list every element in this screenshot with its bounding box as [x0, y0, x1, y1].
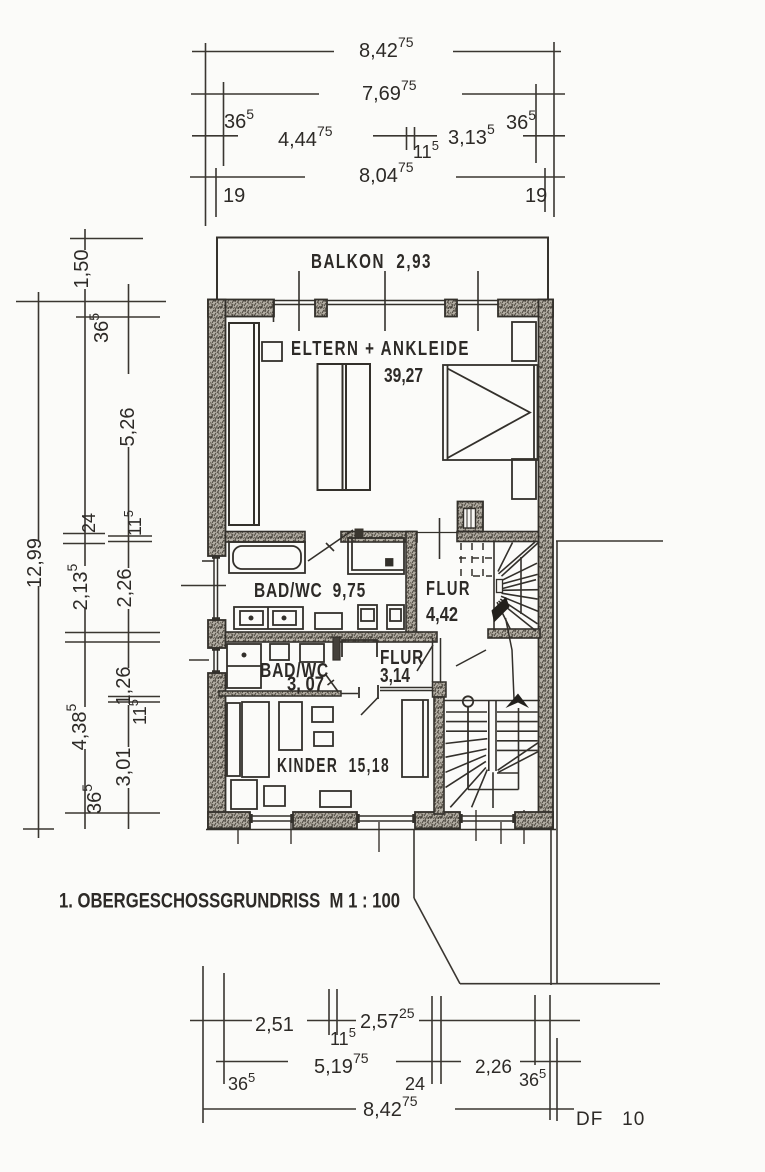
svg-text:5,26: 5,26 [117, 408, 139, 447]
svg-text:3,01: 3,01 [113, 748, 135, 787]
svg-text:KINDER 15,18: KINDER 15,18 [277, 755, 390, 777]
svg-text:24: 24 [79, 513, 99, 533]
svg-text:ELTERN + ANKLEIDE: ELTERN + ANKLEIDE [291, 338, 470, 360]
svg-text:39,27: 39,27 [384, 365, 423, 387]
svg-text:2,26: 2,26 [475, 1057, 512, 1078]
svg-text:DF 10: DF 10 [576, 1109, 645, 1130]
svg-text:FLUR: FLUR [426, 578, 471, 600]
svg-text:2,26: 2,26 [114, 569, 136, 608]
svg-text:4,42: 4,42 [426, 604, 458, 626]
svg-text:12,99: 12,99 [24, 538, 46, 588]
svg-text:1. OBERGESCHOSSGRUNDRISS M 1: 1. OBERGESCHOSSGRUNDRISS M 1 : 100 [59, 890, 400, 913]
svg-text:1,50: 1,50 [71, 250, 93, 289]
svg-text:BALKON 2,93: BALKON 2,93 [311, 251, 432, 273]
svg-text:3, 07: 3, 07 [287, 674, 324, 696]
svg-text:19: 19 [525, 185, 547, 207]
svg-text:3,14: 3,14 [380, 665, 411, 687]
svg-text:24: 24 [405, 1074, 425, 1094]
svg-text:19: 19 [223, 185, 245, 207]
svg-text:2,51: 2,51 [255, 1014, 294, 1036]
svg-text:BAD/WC 9,75: BAD/WC 9,75 [254, 580, 366, 602]
